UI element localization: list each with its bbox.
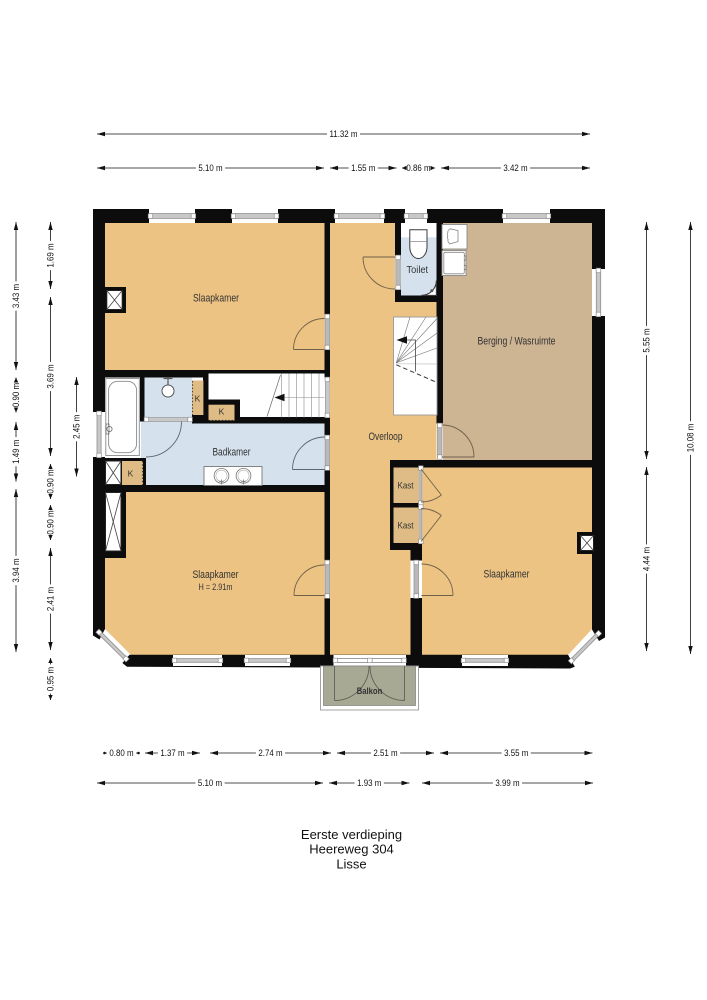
svg-text:0.86 m: 0.86 m [406,163,430,173]
svg-text:4.44 m: 4.44 m [642,547,652,571]
svg-text:10.08 m: 10.08 m [686,424,696,453]
svg-text:2.41 m: 2.41 m [46,587,56,611]
svg-text:3.69 m: 3.69 m [46,364,56,388]
svg-text:2.45 m: 2.45 m [72,415,82,439]
svg-text:0.80 m: 0.80 m [109,748,133,758]
svg-text:K: K [195,394,201,404]
svg-text:K: K [219,407,225,417]
svg-text:3.55 m: 3.55 m [504,748,528,758]
svg-text:3.99 m: 3.99 m [495,778,519,788]
svg-text:0.90 m: 0.90 m [46,469,56,493]
svg-text:Slaapkamer: Slaapkamer [484,569,530,581]
svg-text:2.74 m: 2.74 m [258,748,282,758]
svg-text:0.90 m: 0.90 m [46,510,56,534]
svg-text:1.93 m: 1.93 m [357,778,381,788]
svg-text:5.10 m: 5.10 m [198,778,222,788]
svg-text:Slaapkamer: Slaapkamer [193,569,239,581]
svg-text:3.43 m: 3.43 m [11,284,21,308]
svg-text:1.55 m: 1.55 m [351,163,375,173]
svg-text:H = 2.91m: H = 2.91m [199,582,233,592]
svg-text:Balkon: Balkon [357,686,383,697]
svg-text:5.55 m: 5.55 m [642,328,652,352]
svg-text:3.42 m: 3.42 m [503,163,527,173]
svg-text:Lisse: Lisse [336,857,366,872]
svg-text:1.49 m: 1.49 m [11,440,21,464]
svg-text:0.95 m: 0.95 m [46,667,56,691]
svg-text:Toilet: Toilet [407,265,429,276]
svg-text:5.10 m: 5.10 m [198,163,222,173]
svg-text:K: K [128,469,134,479]
svg-text:Overloop: Overloop [369,431,403,443]
svg-text:1.37 m: 1.37 m [160,748,184,758]
svg-text:11.32 m: 11.32 m [330,129,358,139]
svg-text:Slaapkamer: Slaapkamer [193,293,239,305]
svg-text:Kast: Kast [398,521,414,532]
svg-text:2.51 m: 2.51 m [373,748,397,758]
svg-text:Kast: Kast [398,481,414,492]
svg-text:0.90 m: 0.90 m [11,383,21,407]
svg-text:3.94 m: 3.94 m [11,558,21,582]
svg-text:Badkamer: Badkamer [213,447,251,459]
svg-text:Berging / Wasruimte: Berging / Wasruimte [478,336,556,348]
svg-text:Eerste verdieping: Eerste verdieping [301,827,402,842]
svg-text:1.69 m: 1.69 m [46,243,56,267]
svg-text:Heereweg 304: Heereweg 304 [309,842,394,857]
